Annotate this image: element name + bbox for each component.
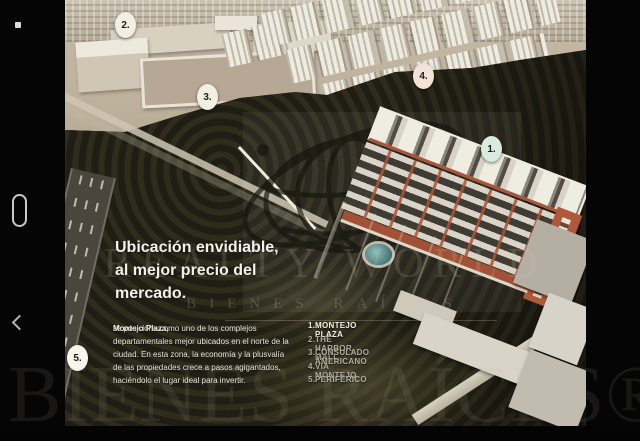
image-viewer: { "colors": { "marker_default": "#f2eee3… [0,0,640,426]
aerial-render-photo[interactable]: 1. 2. 3. 4. 5. Ubicación envidiable, al … [65,0,586,426]
pool [365,244,392,265]
map-marker-3: 3. [197,84,218,110]
status-square-icon [15,22,21,28]
map-marker-2: 2. [115,12,136,38]
map-marker-1: 1. [481,136,502,162]
viewer-left-bar [0,0,65,426]
viewer-right-bar [586,0,640,426]
slide-body-rest: se posiciona como uno de los complejos d… [113,322,289,387]
legend-label: PERIFÉRICO [315,375,367,384]
watermark-divider-line [225,320,497,321]
rotate-orientation-icon[interactable] [12,194,27,227]
map-marker-4: 4. [413,63,434,89]
map-marker-5: 5. [67,345,88,371]
slide-headline: Ubicación envidiable, al mejor precio de… [115,236,295,305]
